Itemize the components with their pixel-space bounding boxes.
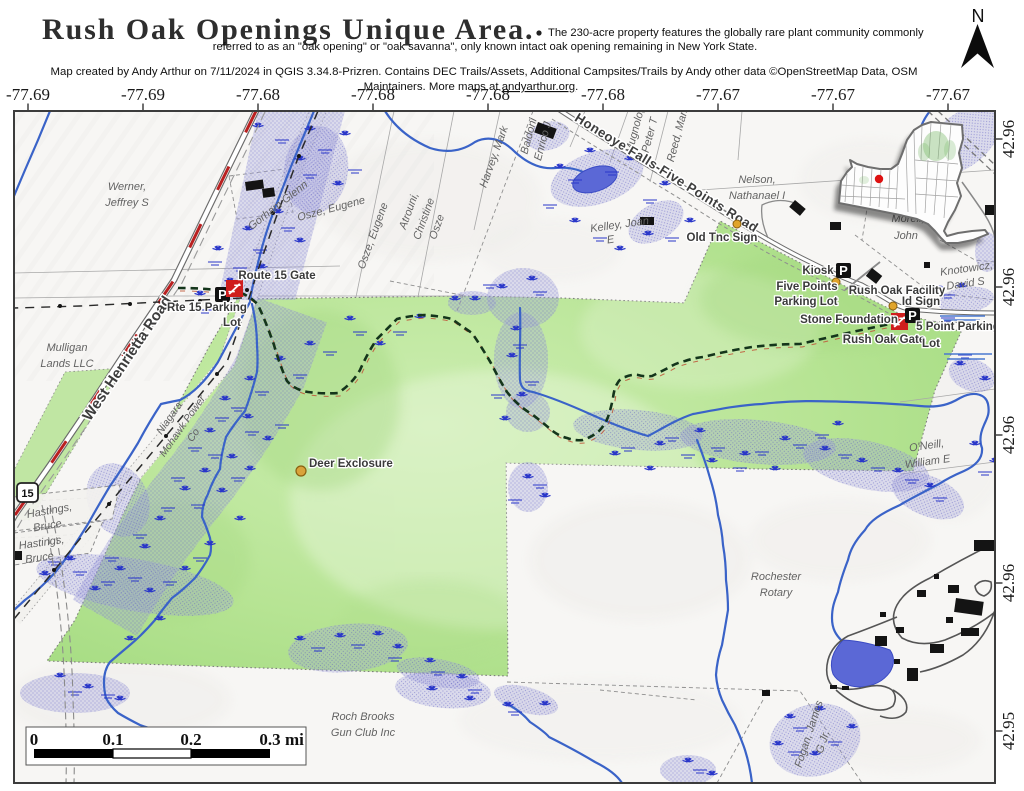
svg-text:42.95: 42.95 bbox=[999, 712, 1018, 750]
svg-text:-77.68: -77.68 bbox=[581, 85, 625, 104]
svg-text:Nelson,: Nelson, bbox=[738, 174, 775, 186]
svg-text:-77.68: -77.68 bbox=[466, 85, 510, 104]
svg-text:0: 0 bbox=[30, 730, 39, 749]
svg-text:Stone Foundation: Stone Foundation bbox=[800, 314, 898, 326]
svg-text:Lands LLC: Lands LLC bbox=[40, 358, 93, 370]
svg-text:-77.69: -77.69 bbox=[121, 85, 165, 104]
svg-text:Rochester: Rochester bbox=[751, 571, 802, 583]
svg-text:-77.67: -77.67 bbox=[811, 85, 855, 104]
svg-text:Rotary: Rotary bbox=[760, 587, 794, 599]
svg-text:15: 15 bbox=[21, 488, 33, 500]
svg-text:-77.67: -77.67 bbox=[926, 85, 970, 104]
svg-text:-77.68: -77.68 bbox=[351, 85, 395, 104]
svg-text:Map created by Andy Arthur on: Map created by Andy Arthur on 7/11/2024 … bbox=[51, 66, 918, 78]
svg-text:N: N bbox=[972, 6, 985, 26]
svg-text:Deer Exclosure: Deer Exclosure bbox=[309, 458, 393, 470]
svg-text:Five Points: Five Points bbox=[776, 281, 837, 293]
svg-text:42.96: 42.96 bbox=[999, 120, 1018, 158]
svg-text:Route 15 Gate: Route 15 Gate bbox=[238, 270, 315, 282]
svg-text:mi: mi bbox=[285, 730, 304, 749]
svg-text:Werner,: Werner, bbox=[108, 181, 146, 193]
svg-text:Nathanael I: Nathanael I bbox=[729, 190, 785, 202]
svg-text:Lot: Lot bbox=[223, 317, 241, 329]
svg-text:0.2: 0.2 bbox=[180, 730, 201, 749]
svg-text:-77.69: -77.69 bbox=[6, 85, 50, 104]
svg-text:Rush Oak Gate: Rush Oak Gate bbox=[843, 334, 925, 346]
svg-text:42.96: 42.96 bbox=[999, 268, 1018, 306]
svg-text:Lot: Lot bbox=[922, 338, 940, 350]
svg-text:Rte 15 Parking: Rte 15 Parking bbox=[167, 302, 247, 314]
svg-text:Kiosk: Kiosk bbox=[802, 265, 834, 277]
svg-text:0.3: 0.3 bbox=[259, 730, 280, 749]
svg-text:John: John bbox=[893, 230, 918, 242]
svg-text:Id Sign: Id Sign bbox=[902, 296, 940, 308]
svg-text:Roch Brooks: Roch Brooks bbox=[332, 711, 395, 723]
svg-text:Jeffrey S: Jeffrey S bbox=[104, 197, 149, 209]
svg-text:-77.67: -77.67 bbox=[696, 85, 740, 104]
svg-text:referred to as an "oak opening: referred to as an "oak opening" or "oak … bbox=[213, 41, 758, 53]
svg-text:5 Point Parking: 5 Point Parking bbox=[916, 321, 1000, 333]
svg-text:-77.68: -77.68 bbox=[236, 85, 280, 104]
svg-text:Gun Club Inc: Gun Club Inc bbox=[331, 727, 396, 739]
svg-text:Parking Lot: Parking Lot bbox=[774, 296, 837, 308]
svg-text:42.96: 42.96 bbox=[999, 416, 1018, 454]
svg-text:Mulligan: Mulligan bbox=[47, 342, 88, 354]
svg-text:0.1: 0.1 bbox=[102, 730, 123, 749]
svg-text:The 230-acre property features: The 230-acre property features the globa… bbox=[548, 27, 924, 39]
svg-text:42.96: 42.96 bbox=[999, 564, 1018, 602]
svg-text:Old Tnc Sign: Old Tnc Sign bbox=[687, 232, 758, 244]
